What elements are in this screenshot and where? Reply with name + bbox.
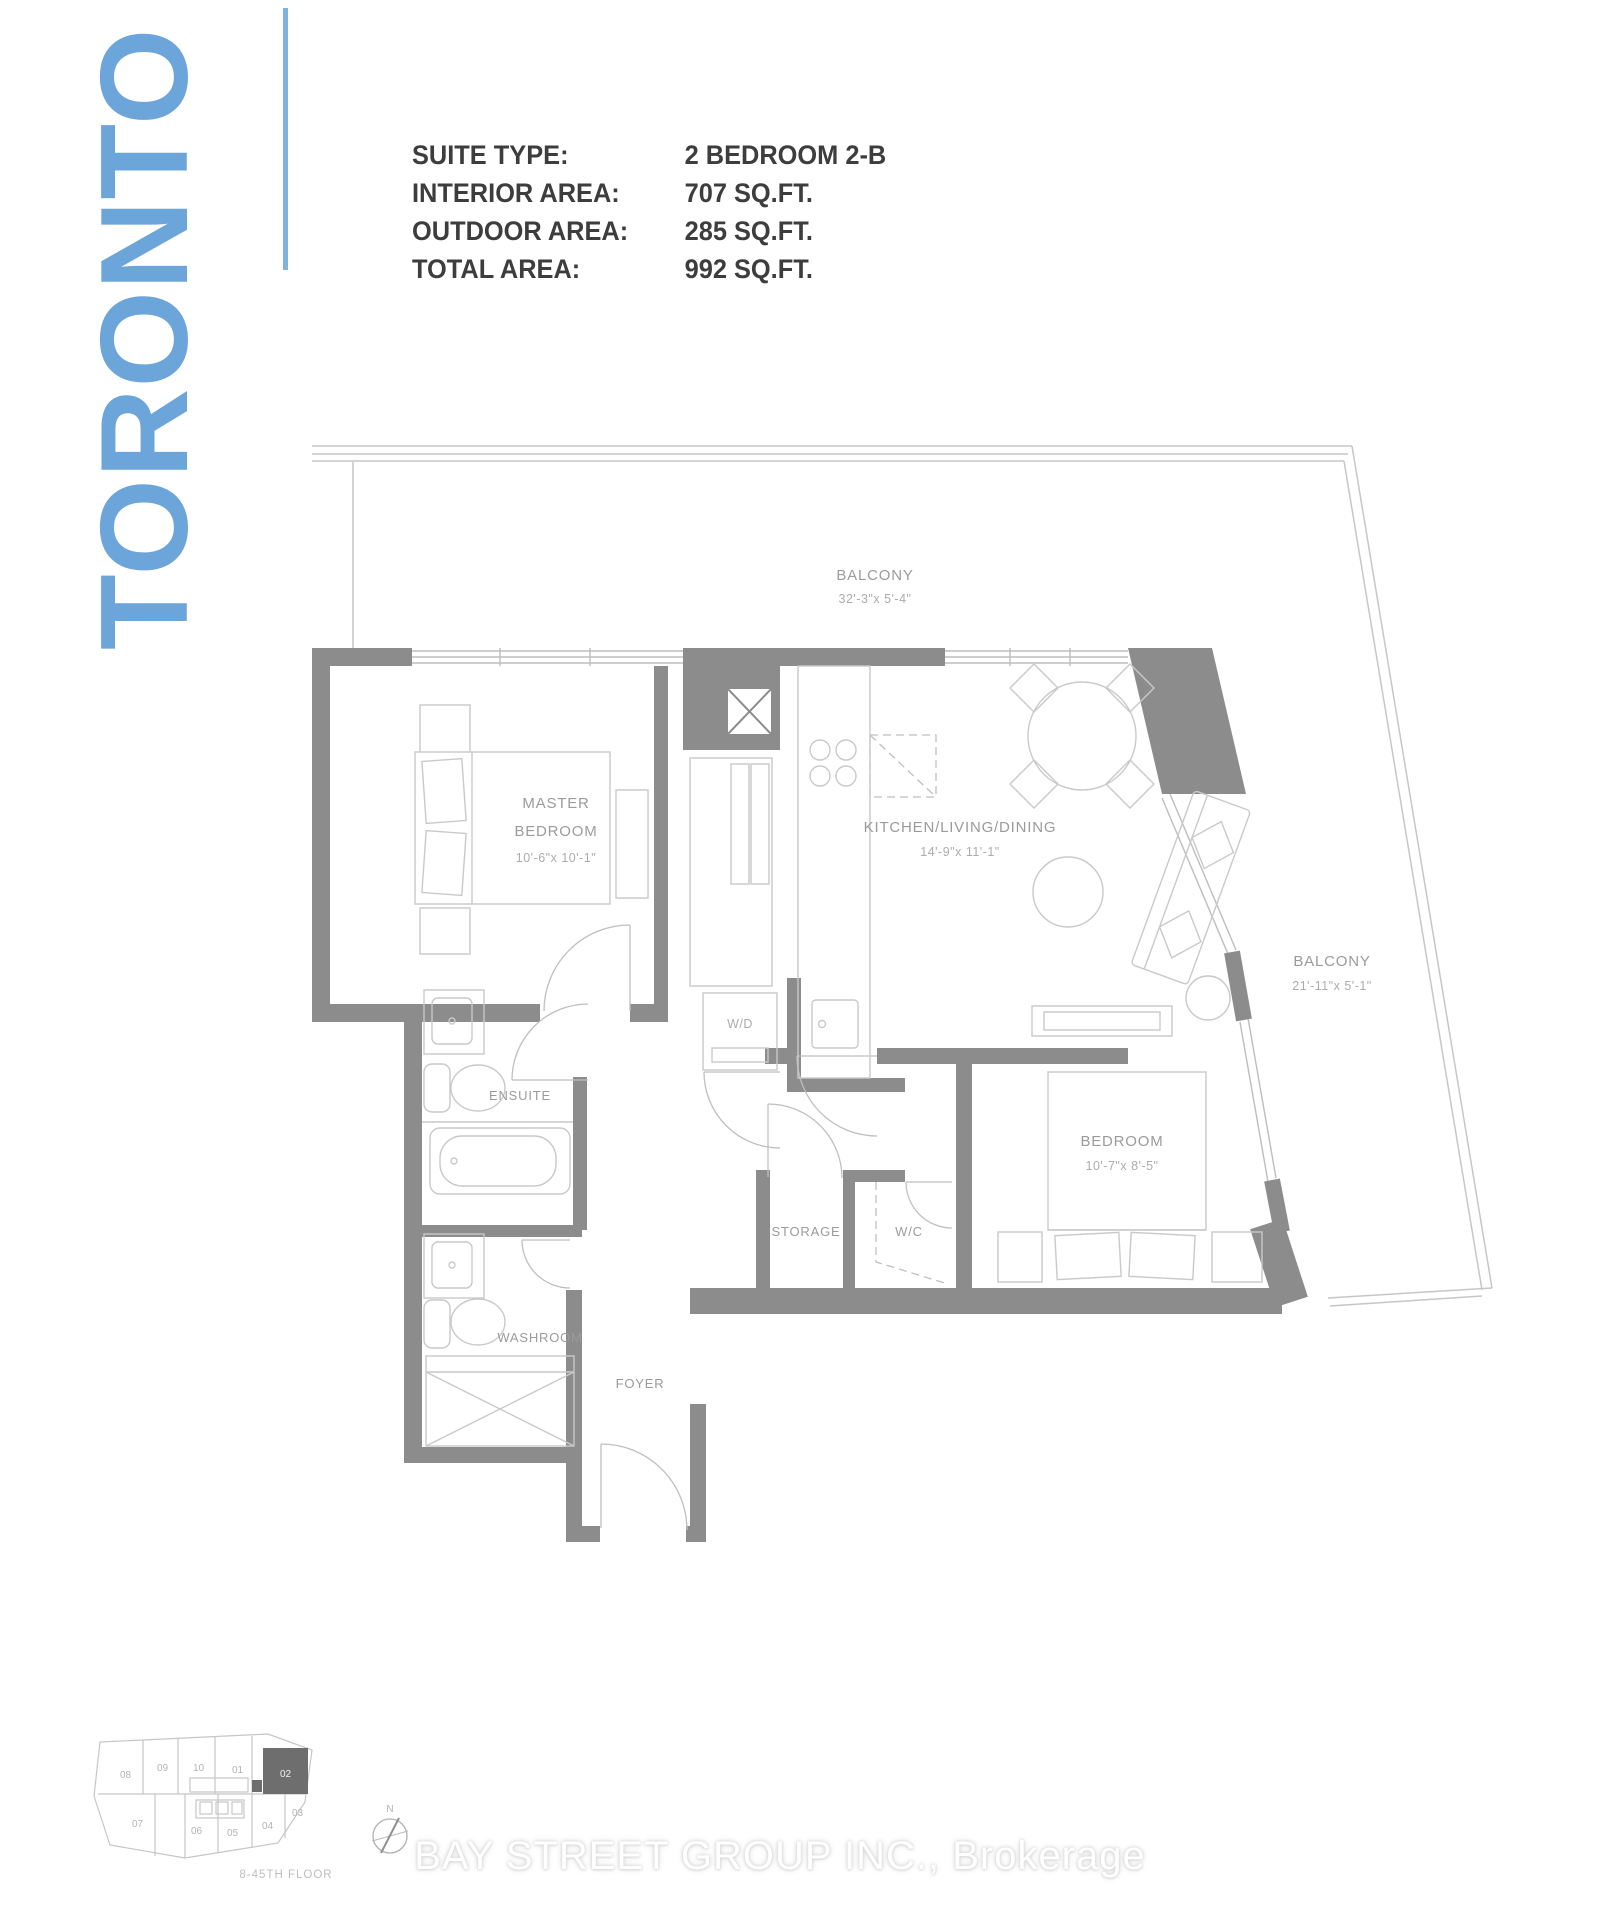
floor-plan-sheet: TORONTO SUITE TYPE: 2 BEDROOM 2-B INTERI… bbox=[0, 0, 1605, 1920]
unit-03: 03 bbox=[292, 1808, 304, 1819]
unit-02: 02 bbox=[280, 1769, 292, 1780]
kitchen-living-dining-label: KITCHEN/LIVING/DINING bbox=[864, 819, 1057, 836]
unit-08: 08 bbox=[120, 1770, 132, 1781]
storage-label: STORAGE bbox=[772, 1224, 841, 1239]
wc-bulkhead-dashed bbox=[870, 735, 948, 1284]
kitchen-living-dining-dims: 14'-9"x 11'-1" bbox=[920, 845, 999, 859]
unit-09: 09 bbox=[157, 1763, 169, 1774]
master-bedroom-dims: 10'-6"x 10'-1" bbox=[516, 851, 596, 865]
unit-06: 06 bbox=[191, 1826, 203, 1837]
master-bedroom-label-1: MASTER bbox=[522, 795, 589, 812]
angled-wall-piers bbox=[1232, 952, 1282, 1232]
ensuite-label: ENSUITE bbox=[489, 1088, 551, 1103]
wc-label: W/C bbox=[895, 1224, 923, 1239]
foyer-label: FOYER bbox=[616, 1376, 665, 1391]
floor-range-note: 8-45TH FLOOR bbox=[239, 1869, 332, 1881]
unit-07: 07 bbox=[132, 1819, 144, 1830]
master-bedroom-label-2: BEDROOM bbox=[514, 823, 597, 840]
washroom-label: WASHROOM bbox=[497, 1330, 582, 1345]
window-glazing-angled bbox=[1162, 794, 1276, 1182]
compass-north-label: N bbox=[386, 1804, 393, 1815]
balcony-right-dims: 21'-11"x 5'-1" bbox=[1292, 979, 1371, 993]
bedroom-dims: 10'-7"x 8'-5" bbox=[1086, 1159, 1159, 1173]
balcony-top-label: BALCONY bbox=[836, 567, 913, 584]
unit-05: 05 bbox=[227, 1828, 239, 1839]
unit-10: 10 bbox=[193, 1763, 205, 1774]
bedroom-furniture bbox=[998, 1072, 1262, 1282]
balcony-top-dims: 32'-3"x 5'-4" bbox=[839, 592, 912, 606]
balcony-right-label: BALCONY bbox=[1293, 953, 1370, 970]
bedroom-label: BEDROOM bbox=[1080, 1133, 1163, 1150]
floor-plan-drawing: BALCONY 32'-3"x 5'-4" BALCONY 21'-11"x 5… bbox=[0, 0, 1605, 1920]
shaft-icon bbox=[727, 688, 772, 735]
unit-01: 01 bbox=[232, 1765, 244, 1776]
unit-04: 04 bbox=[262, 1821, 274, 1832]
key-plan bbox=[94, 1734, 312, 1858]
wd-label: W/D bbox=[727, 1017, 753, 1031]
kitchen-counter bbox=[798, 666, 870, 1078]
brokerage-watermark: BAY STREET GROUP INC., Brokerage bbox=[400, 1834, 1160, 1879]
